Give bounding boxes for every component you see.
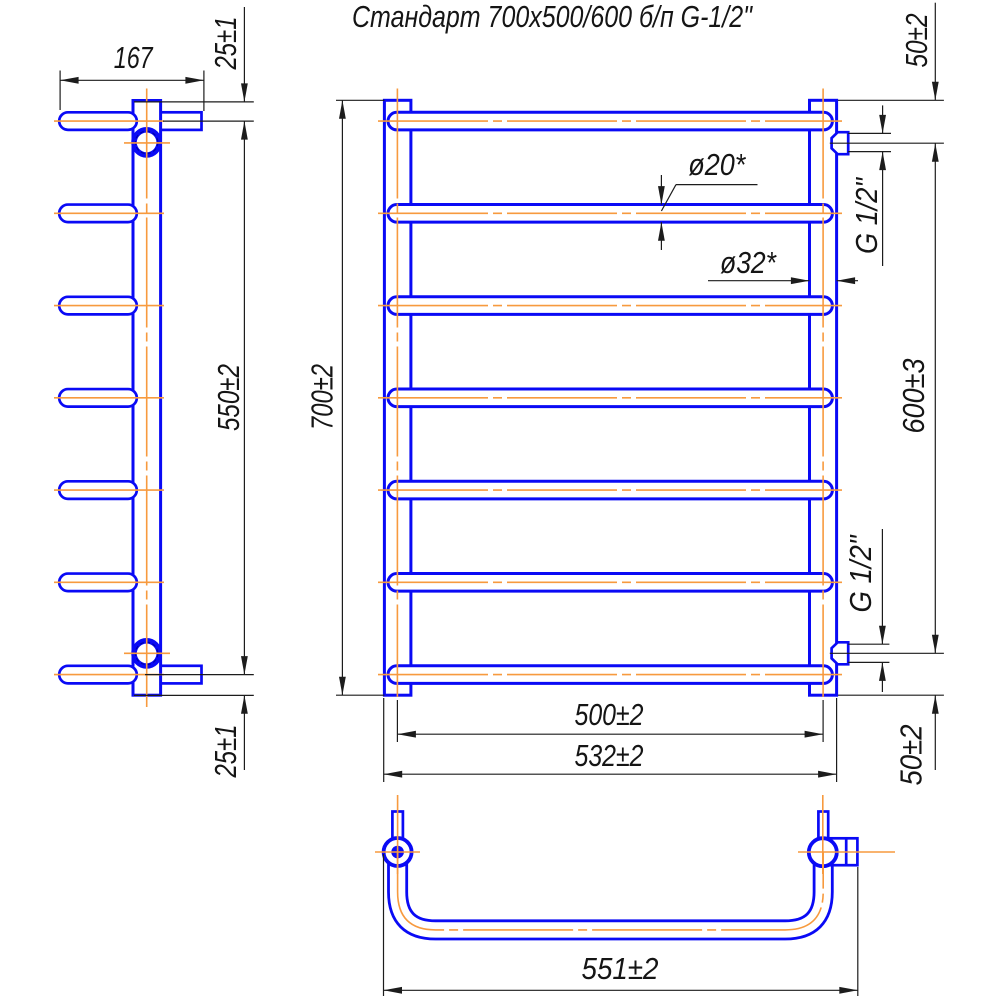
svg-text:700±2: 700±2 xyxy=(304,364,339,430)
svg-text:ø20*: ø20* xyxy=(688,147,746,182)
svg-text:500±2: 500±2 xyxy=(575,697,644,732)
svg-text:25±1: 25±1 xyxy=(208,17,243,71)
svg-text:550±2: 550±2 xyxy=(211,364,246,431)
svg-text:Стандарт 700х500/600 б/п G-1/: Стандарт 700х500/600 б/п G-1/2" xyxy=(352,0,754,34)
svg-text:G 1/2": G 1/2" xyxy=(843,534,878,613)
svg-text:50±2: 50±2 xyxy=(899,14,934,68)
svg-text:532±2: 532±2 xyxy=(575,738,644,773)
svg-text:50±2: 50±2 xyxy=(894,725,929,786)
svg-text:551±2: 551±2 xyxy=(582,951,659,986)
svg-text:ø32*: ø32* xyxy=(720,245,777,280)
svg-text:600±3: 600±3 xyxy=(896,359,931,434)
svg-text:167: 167 xyxy=(114,40,154,75)
svg-text:G 1/2": G 1/2" xyxy=(849,176,884,254)
svg-text:25±1: 25±1 xyxy=(208,725,243,779)
